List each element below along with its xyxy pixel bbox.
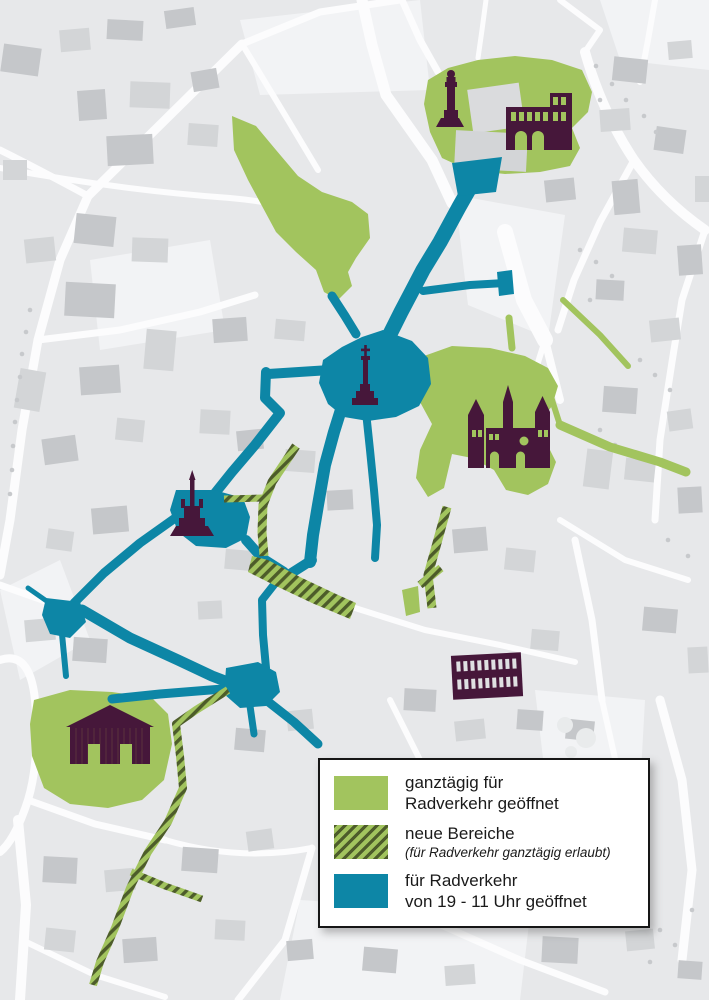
- legend-swatch-green-hatched: [334, 825, 388, 859]
- legend-label-open-all-day: ganztägig für Radverkehr geöffnet: [405, 772, 559, 814]
- teal-se-stub: [250, 706, 254, 734]
- legend-row-timed: für Radverkehr von 19 - 11 Uhr geöffnet: [334, 870, 634, 912]
- arcaded-building-icon: [451, 652, 523, 700]
- legend: ganztägig für Radverkehr geöffnet neue B…: [318, 758, 650, 928]
- legend-label-new-areas: neue Bereiche (für Radverkehr ganztägig …: [405, 823, 611, 861]
- legend-row-new-areas: neue Bereiche (für Radverkehr ganztägig …: [334, 823, 634, 861]
- legend-swatch-teal-solid: [334, 874, 388, 908]
- teal-junction-south: [62, 634, 66, 676]
- hatch-west-branch: [224, 498, 263, 499]
- teal-porta-plaza: [452, 157, 502, 196]
- legend-swatch-green-solid: [334, 776, 388, 810]
- legend-label-timed: für Radverkehr von 19 - 11 Uhr geöffnet: [405, 870, 587, 912]
- legend-row-open-all-day: ganztägig für Radverkehr geöffnet: [334, 772, 634, 814]
- teal-east-cap: [497, 270, 514, 296]
- cycling-zones-map: ganztägig für Radverkehr geöffnet neue B…: [0, 0, 709, 1000]
